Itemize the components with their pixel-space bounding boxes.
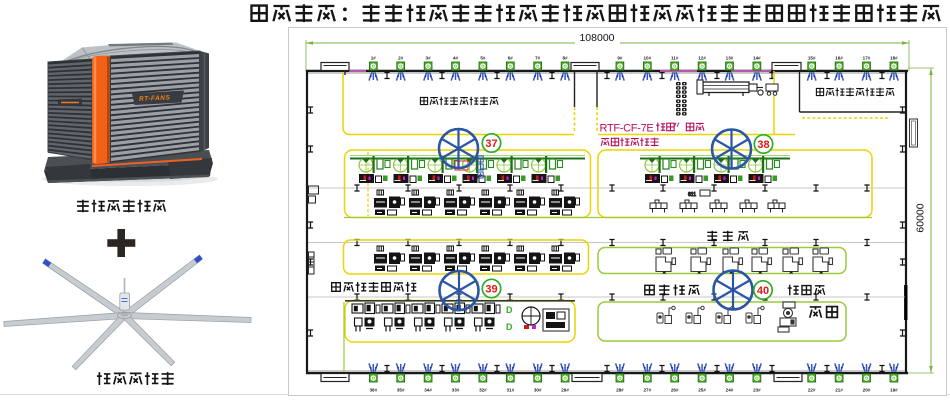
svg-text:D: D	[506, 305, 513, 315]
svg-text:6#: 6#	[508, 56, 514, 61]
svg-text:39: 39	[485, 283, 497, 295]
svg-text:38: 38	[757, 139, 769, 151]
svg-text:5#: 5#	[480, 56, 486, 61]
svg-text:27#: 27#	[643, 388, 651, 393]
svg-text:12#: 12#	[698, 56, 706, 61]
svg-text:16#: 16#	[835, 56, 843, 61]
svg-text:60000: 60000	[915, 203, 927, 232]
svg-text:25#: 25#	[698, 388, 706, 393]
svg-text:24#: 24#	[726, 388, 734, 393]
svg-text:23#: 23#	[753, 388, 761, 393]
svg-text:40: 40	[757, 285, 769, 297]
svg-text:31#: 31#	[506, 388, 514, 393]
svg-text:611: 611	[688, 192, 696, 198]
svg-text:2#: 2#	[398, 56, 404, 61]
svg-text:7#: 7#	[535, 56, 541, 61]
svg-text:9#: 9#	[617, 56, 623, 61]
svg-text:D: D	[506, 322, 513, 332]
svg-text:RTF-CF-7E: RTF-CF-7E	[600, 123, 654, 135]
svg-text:26#: 26#	[671, 388, 679, 393]
svg-text:28#: 28#	[616, 388, 624, 393]
svg-text:11#: 11#	[671, 56, 679, 61]
svg-text:30#: 30#	[534, 388, 542, 393]
svg-text:RT-FANS: RT-FANS	[139, 94, 171, 102]
svg-text:15#: 15#	[808, 56, 816, 61]
svg-text:37: 37	[485, 138, 497, 150]
svg-text:13#: 13#	[726, 56, 734, 61]
svg-text:17#: 17#	[863, 56, 871, 61]
svg-text:35#: 35#	[397, 388, 405, 393]
svg-text:36#: 36#	[369, 388, 377, 393]
svg-text:34#: 34#	[424, 388, 432, 393]
svg-text:18#: 18#	[890, 56, 898, 61]
svg-text:10#: 10#	[643, 56, 651, 61]
svg-text:3#: 3#	[426, 56, 432, 61]
svg-text:33#: 33#	[452, 388, 460, 393]
svg-text:29#: 29#	[561, 388, 569, 393]
svg-text:22#: 22#	[808, 388, 816, 393]
svg-text:4#: 4#	[453, 56, 459, 61]
svg-text:108000: 108000	[579, 32, 614, 44]
svg-text:8#: 8#	[563, 56, 569, 61]
svg-text:21#: 21#	[835, 388, 843, 393]
svg-text:1#: 1#	[371, 56, 377, 61]
svg-text:20#: 20#	[863, 388, 871, 393]
svg-text:14#: 14#	[753, 56, 761, 61]
svg-text:32#: 32#	[479, 388, 487, 393]
svg-text:19#: 19#	[890, 388, 898, 393]
